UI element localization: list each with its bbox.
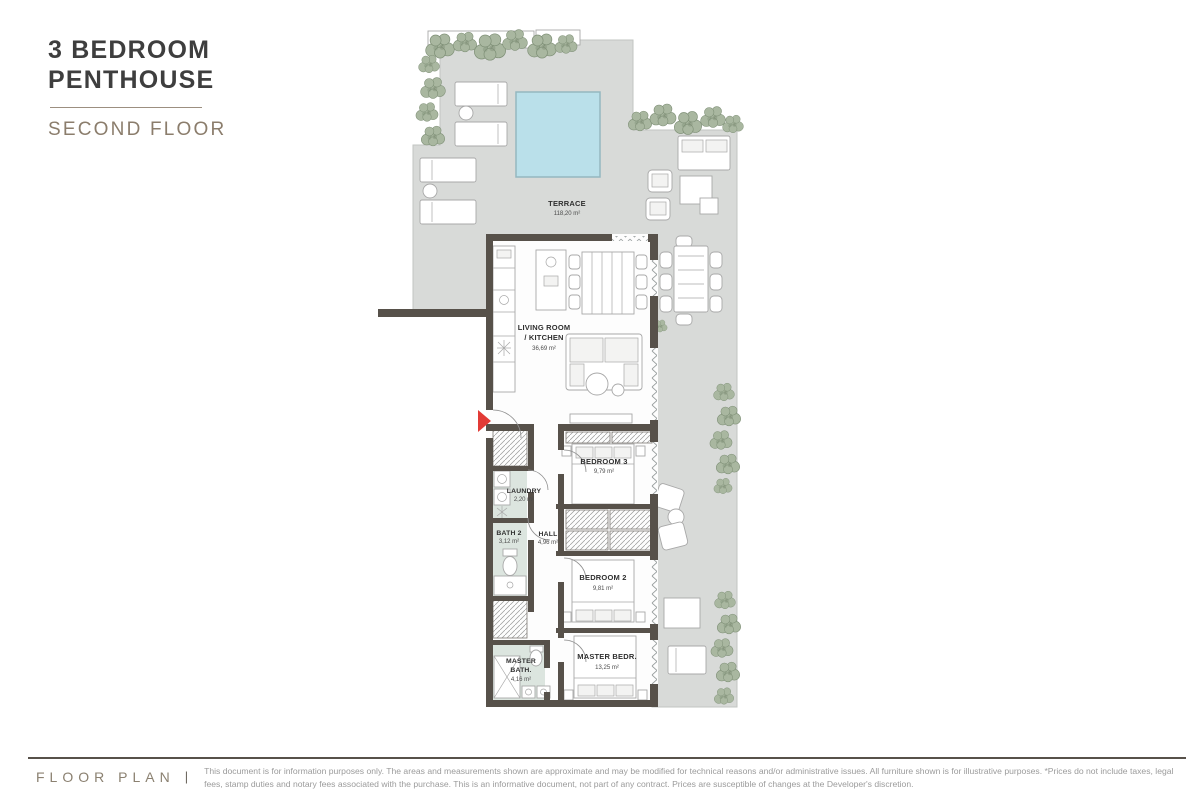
glass-wall — [651, 560, 657, 624]
footer-label: FLOOR PLAN — [36, 765, 175, 785]
terrace-label: TERRACE — [548, 199, 586, 208]
page: 3 BEDROOM PENTHOUSE SECOND FLOOR — [0, 0, 1200, 800]
living-label-2: / KITCHEN — [524, 333, 563, 342]
master-bedroom-label: MASTER BEDR. — [577, 652, 637, 661]
bath2-area: 3,12 m² — [499, 539, 519, 545]
swimming-pool — [516, 92, 600, 177]
glass-wall — [651, 348, 657, 420]
bedroom3-area: 9,79 m² — [594, 469, 614, 475]
bath2-label: BATH 2 — [496, 530, 521, 537]
glass-wall — [612, 236, 648, 241]
kitchen-counter — [493, 246, 515, 392]
living-label-1: LIVING ROOM — [518, 323, 571, 332]
terrace-area: 118,20 m² — [554, 211, 581, 217]
bedroom2-label: BEDROOM 2 — [579, 573, 626, 582]
kitchen-island — [536, 250, 566, 310]
glass-wall — [651, 640, 657, 684]
laundry-area: 2,20 m² — [514, 497, 534, 503]
hall-label: HALL — [539, 531, 558, 538]
living-area: 36,69 m² — [532, 346, 556, 352]
bedroom3-label: BEDROOM 3 — [580, 457, 627, 466]
master-bedroom-area: 13,25 m² — [595, 665, 619, 671]
master-bath-area: 4,16 m² — [511, 677, 531, 683]
footer: FLOOR PLAN | This document is for inform… — [36, 765, 1180, 792]
footer-divider — [28, 757, 1186, 759]
footer-separator: | — [185, 769, 188, 784]
sofa — [566, 334, 642, 396]
master-closet — [493, 600, 527, 638]
laundry-label: LAUNDRY — [507, 488, 542, 495]
disclaimer-text: This document is for information purpose… — [204, 765, 1180, 792]
master-bath-label-1: MASTER — [506, 658, 536, 665]
master-bath-label-2: BATH. — [510, 667, 531, 674]
bedroom2-area: 9,81 m² — [593, 586, 613, 592]
floor-plan: TERRACE 118,20 m² LIVING ROOM / KITCHEN … — [0, 0, 1200, 800]
glass-wall — [651, 260, 657, 296]
glass-wall — [651, 442, 657, 494]
entry-closet — [493, 430, 527, 466]
hall-area: 4,96 m² — [538, 540, 558, 546]
tv-console — [570, 414, 632, 423]
